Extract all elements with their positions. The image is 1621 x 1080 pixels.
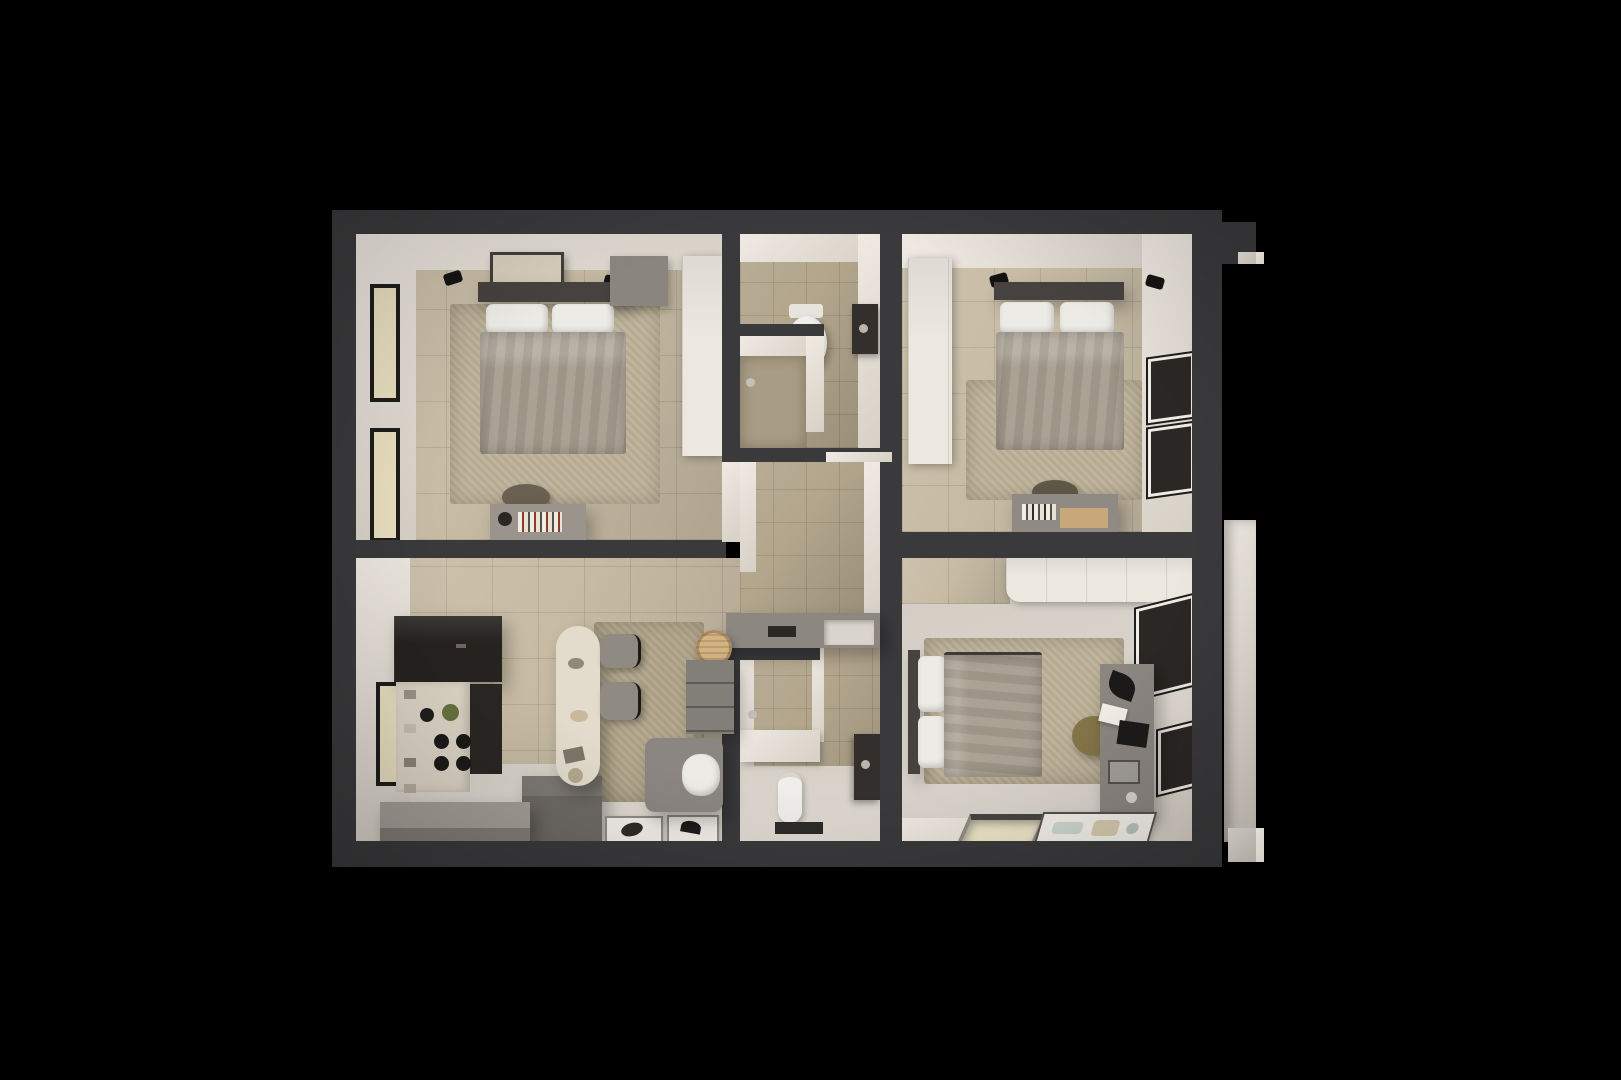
cabinet-handle-icon <box>456 644 466 648</box>
desk-lamp-icon <box>498 512 512 526</box>
wardrobe <box>1006 558 1194 602</box>
balcony-wall <box>1224 520 1256 842</box>
bowl <box>568 658 584 669</box>
balcony-wall-bottom <box>1228 828 1264 862</box>
window-icon <box>370 428 400 542</box>
cooktop-burner-icon <box>456 756 471 771</box>
pillow <box>552 304 614 334</box>
kitchen-tall-cabinet <box>470 684 502 774</box>
shower-head-icon <box>746 378 755 387</box>
wardrobe <box>682 256 722 456</box>
books <box>1022 504 1056 520</box>
spice-jar <box>404 690 416 699</box>
dresser <box>610 256 668 306</box>
bed-duvet <box>944 652 1042 777</box>
bathroom-bench <box>775 822 823 834</box>
drawer-cabinet <box>686 660 734 734</box>
faucet-icon <box>859 324 868 333</box>
window-icon <box>1148 423 1194 497</box>
bedroom-bottom-right <box>902 558 1192 841</box>
console-tray <box>768 626 796 637</box>
pillow <box>918 716 946 768</box>
dining-chair <box>600 682 641 720</box>
bathroom-bottom <box>740 648 880 841</box>
toilet <box>778 772 802 823</box>
outer-wall-bottom <box>332 841 1222 867</box>
wall-mid-right <box>880 532 1196 558</box>
west-wall-face <box>740 462 756 572</box>
tray <box>563 746 585 764</box>
wall-bedroomA-bath <box>722 232 740 448</box>
spice-jar <box>404 784 416 793</box>
books <box>518 512 562 532</box>
desk <box>1100 664 1154 816</box>
armchair <box>645 738 723 812</box>
pot <box>420 708 434 722</box>
desk-lamp-icon <box>1105 670 1140 702</box>
pillow <box>486 304 548 334</box>
art-motif <box>1125 823 1140 834</box>
notch-sill <box>1238 252 1264 264</box>
mug <box>1126 792 1137 803</box>
printer <box>1108 760 1140 784</box>
headboard <box>478 282 632 302</box>
hallway-entry <box>740 462 880 622</box>
wall-bath-bedroomC <box>880 232 902 532</box>
cooktop-burner-icon <box>434 756 449 771</box>
spice-jar <box>404 758 416 767</box>
faucet-icon <box>861 760 870 769</box>
entry-tile-patch <box>902 558 1010 604</box>
pillow <box>1060 302 1114 334</box>
art-motif <box>1090 820 1121 836</box>
shower-wall <box>812 648 824 742</box>
hall-console <box>726 613 880 648</box>
bowl <box>568 768 583 783</box>
laptop <box>1116 720 1149 748</box>
console-basin <box>824 620 874 645</box>
desk <box>490 504 586 540</box>
wardrobe <box>908 258 952 464</box>
cooktop-burner-icon <box>456 734 471 749</box>
pillow <box>918 656 946 712</box>
desk-shelf <box>1060 508 1108 528</box>
east-wall-face <box>864 462 880 622</box>
bathroom-top <box>740 232 880 448</box>
outer-wall-left <box>332 210 356 867</box>
shower-head-icon <box>748 710 757 719</box>
outer-wall-right <box>1192 210 1222 867</box>
window-icon <box>370 284 400 402</box>
bath-top-door-leaf <box>826 452 892 462</box>
shower-wall <box>740 730 820 762</box>
art-motif <box>680 819 702 834</box>
dining-chair <box>600 634 641 668</box>
bed-duvet <box>480 332 626 454</box>
window-icon <box>1148 353 1194 423</box>
floorplan-scene <box>0 0 1621 1080</box>
island-bench-dark <box>522 776 602 843</box>
art-motif <box>620 820 645 838</box>
shower-wall-top-edge <box>740 324 824 336</box>
wall-lamp-icon <box>443 270 464 287</box>
bedroom-top-left <box>354 232 722 540</box>
art-motif <box>1051 822 1084 834</box>
shower-floor <box>740 356 806 448</box>
throw-pillow <box>682 754 720 796</box>
cooktop-burner-icon <box>434 734 449 749</box>
bed-duvet <box>996 332 1124 450</box>
bedroom-top-right <box>902 232 1192 532</box>
bedroomA-door-opening <box>722 462 740 542</box>
l-bench-light <box>380 802 530 843</box>
shower-wall <box>806 336 824 432</box>
headboard <box>994 282 1124 300</box>
dining-table <box>556 626 600 786</box>
kitchen-upper-cabinets <box>394 616 502 682</box>
bowl <box>570 710 588 722</box>
desk <box>1012 494 1118 532</box>
wall-mid-left <box>332 540 726 558</box>
wall-hall-bedroomF <box>880 558 902 843</box>
outer-wall-top <box>332 210 1222 234</box>
pillow <box>1000 302 1054 334</box>
spice-jar <box>404 724 416 733</box>
plant-pot <box>442 704 459 721</box>
